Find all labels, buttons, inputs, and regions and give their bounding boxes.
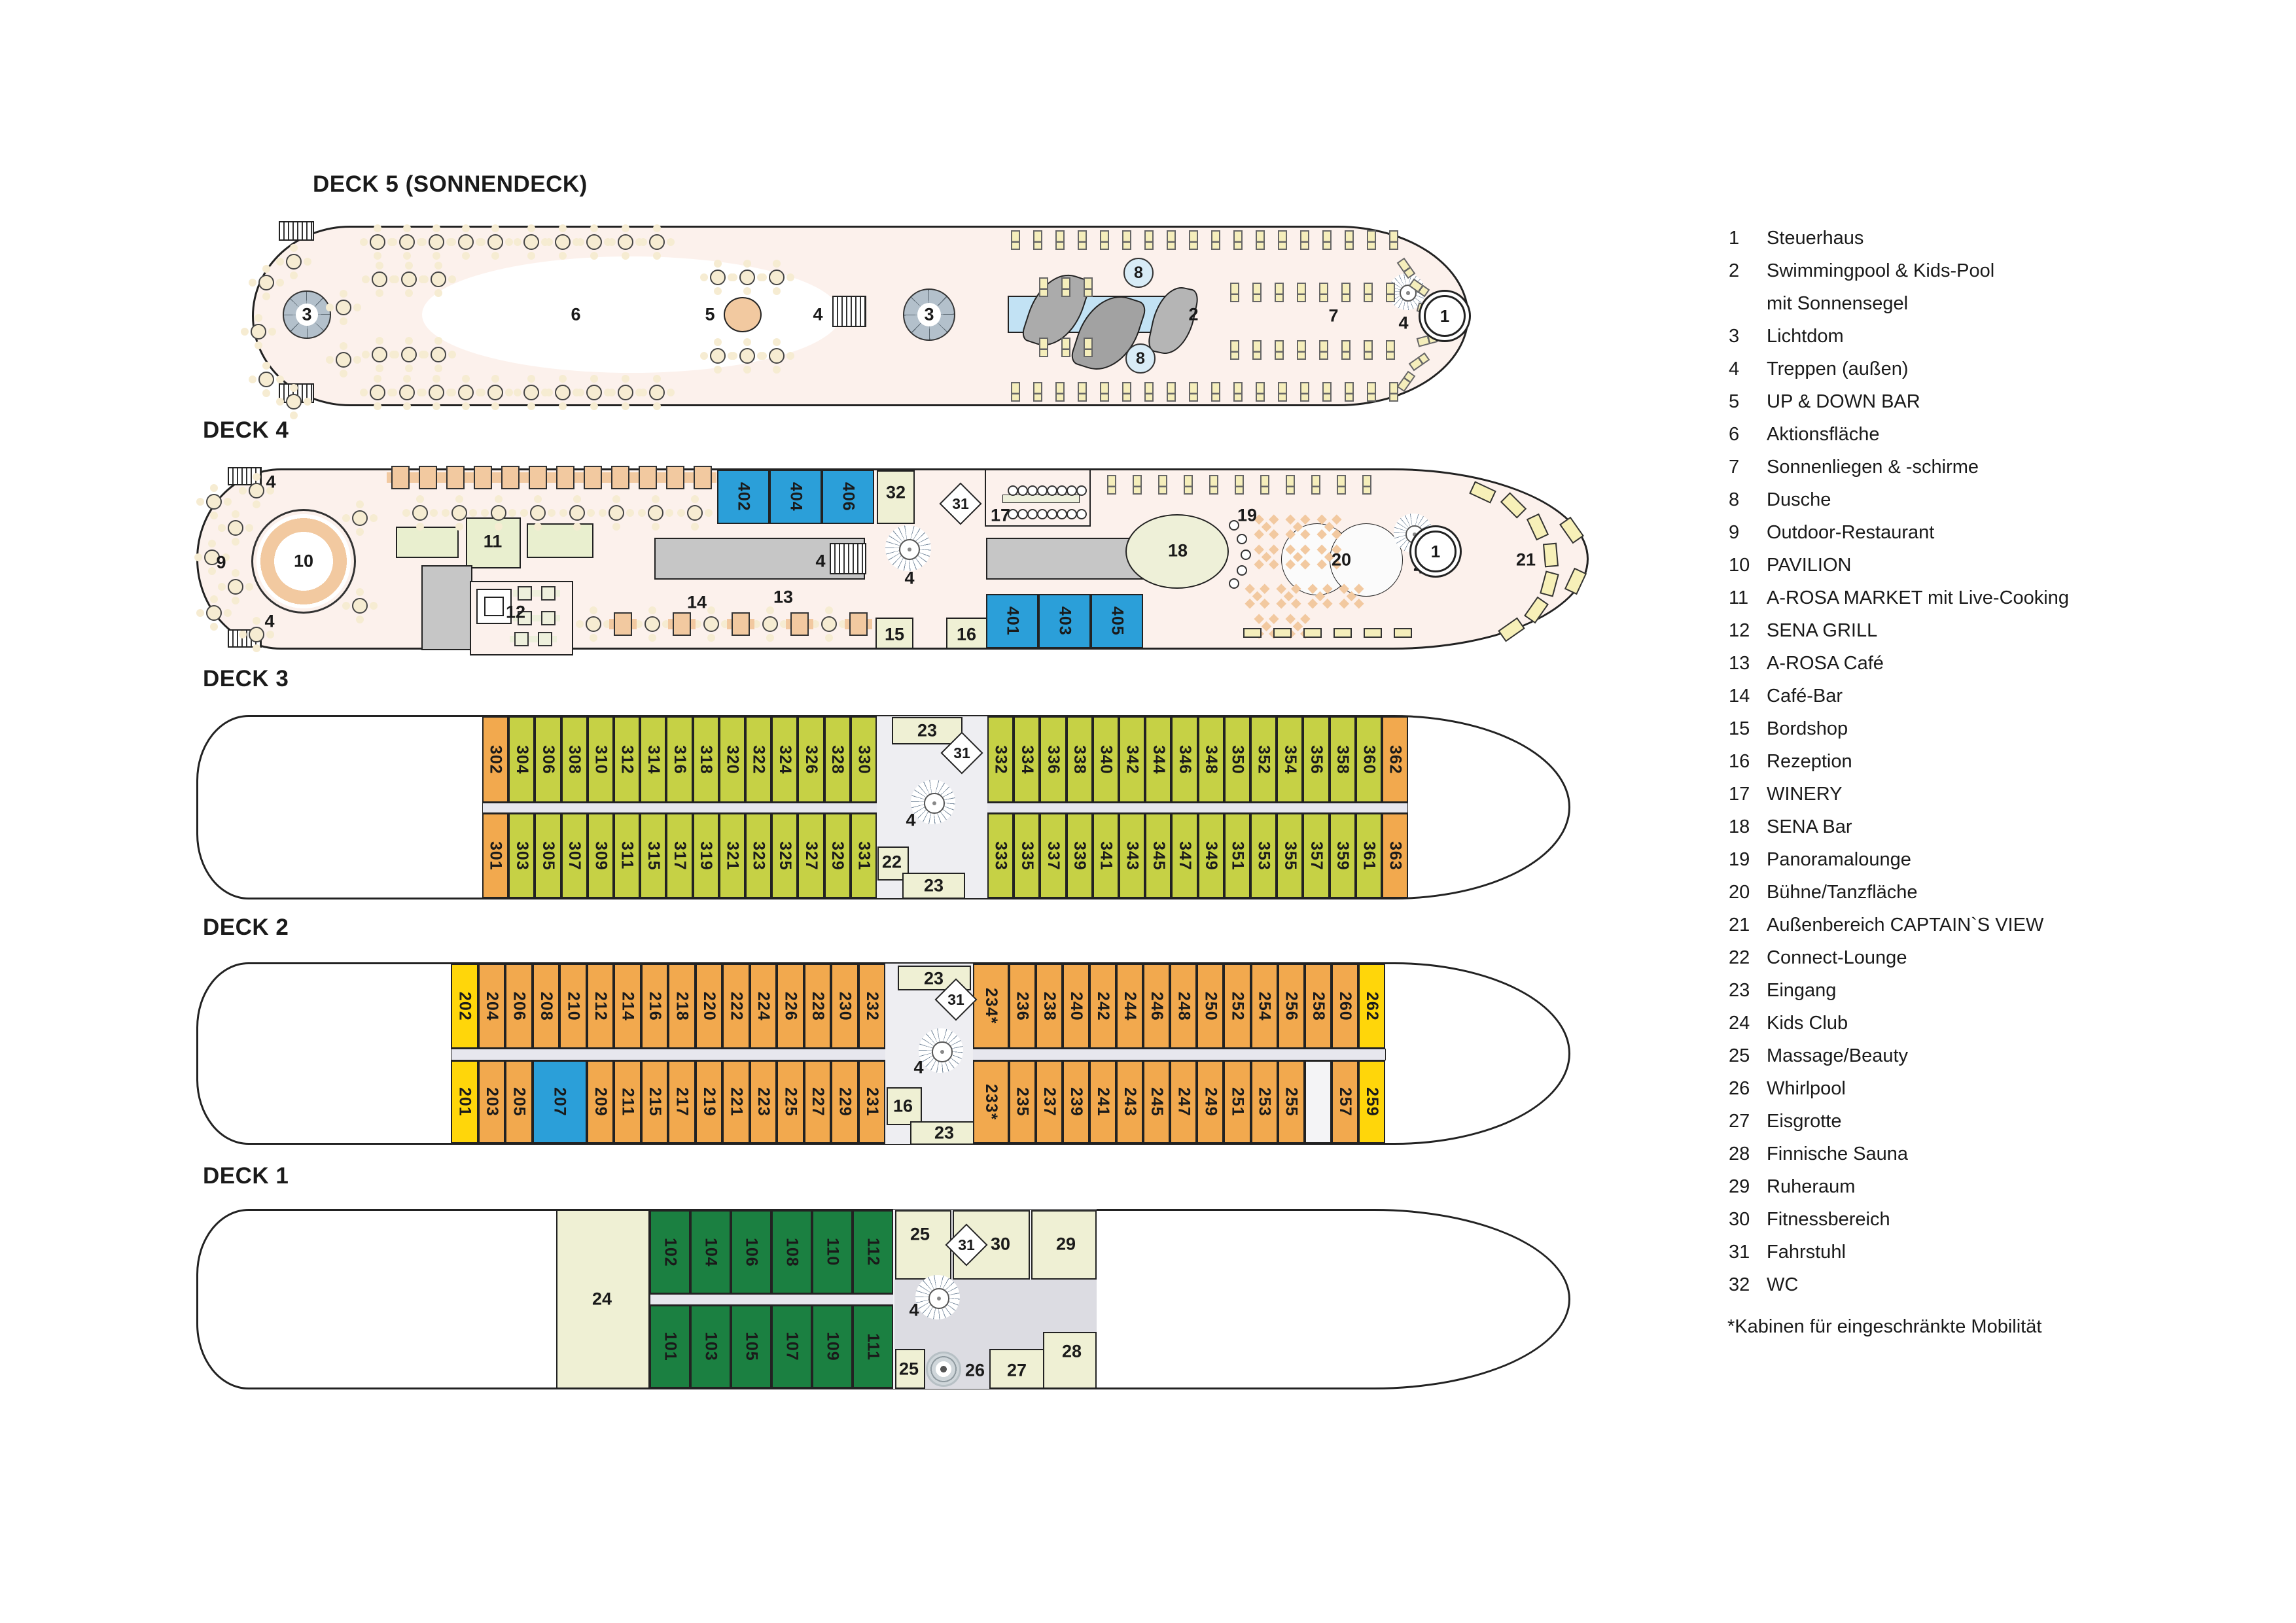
plan-label-28: 28 bbox=[1062, 1342, 1082, 1362]
sofa-icon bbox=[1303, 628, 1322, 638]
plan-label-16: 16 bbox=[893, 1096, 913, 1117]
cabin-number: 201 bbox=[455, 1087, 474, 1117]
cabin-349: 349 bbox=[1198, 813, 1224, 898]
sunlounger-icon bbox=[1122, 230, 1131, 250]
legend-number: 17 bbox=[1729, 784, 1750, 805]
cabin-226: 226 bbox=[777, 964, 804, 1049]
sunlounger-icon bbox=[1078, 230, 1087, 250]
winery-seat-icon bbox=[1047, 485, 1057, 496]
cabin-number: 231 bbox=[862, 1087, 881, 1117]
cabin-number: 239 bbox=[1067, 1087, 1086, 1117]
table-icon bbox=[732, 612, 750, 636]
table-icon bbox=[584, 466, 602, 489]
cabin-number: 333 bbox=[991, 841, 1010, 871]
cabin-350: 350 bbox=[1224, 716, 1250, 803]
cabin-333: 333 bbox=[987, 813, 1014, 898]
cabin-number: 402 bbox=[734, 482, 753, 512]
sunlounger-icon bbox=[1107, 475, 1116, 495]
cabin-361: 361 bbox=[1356, 813, 1382, 898]
cabin-number: 345 bbox=[1149, 841, 1168, 871]
cabin-number: 244 bbox=[1120, 992, 1139, 1021]
cabin-number: 342 bbox=[1123, 745, 1142, 775]
plan-label-12: 12 bbox=[506, 602, 525, 623]
legend-number: 11 bbox=[1729, 587, 1748, 609]
plan-label-5: 5 bbox=[705, 305, 715, 325]
whirlpool-icon bbox=[926, 1352, 961, 1387]
cabin-250: 250 bbox=[1197, 964, 1224, 1049]
plan-label-9: 9 bbox=[216, 553, 226, 573]
cabin-310: 310 bbox=[588, 716, 614, 803]
sunlounger-icon bbox=[1211, 230, 1220, 250]
plan-label-3: 3 bbox=[924, 305, 934, 325]
cabin-241: 241 bbox=[1089, 1060, 1116, 1143]
cabin-260: 260 bbox=[1332, 964, 1358, 1049]
cabin-number: 102 bbox=[661, 1238, 680, 1267]
winery-seat-icon bbox=[1017, 485, 1028, 496]
legend-label: Lichtdom bbox=[1767, 326, 1844, 347]
sunlounger-icon bbox=[1341, 340, 1351, 360]
table-icon bbox=[555, 234, 571, 250]
plan-label-3: 3 bbox=[302, 305, 311, 325]
table-icon bbox=[530, 505, 546, 521]
cabin-217: 217 bbox=[668, 1060, 696, 1143]
cabin-number: 108 bbox=[783, 1238, 802, 1267]
plan-label-11: 11 bbox=[484, 532, 503, 552]
cabin-308: 308 bbox=[561, 716, 588, 803]
table-icon bbox=[431, 347, 446, 362]
cabin-number: 317 bbox=[670, 841, 689, 871]
cabin-343: 343 bbox=[1119, 813, 1145, 898]
cabin-316: 316 bbox=[666, 716, 692, 803]
cabin-number: 331 bbox=[854, 841, 873, 871]
cabin-number: 336 bbox=[1044, 745, 1063, 775]
steuerhaus-icon: 1 bbox=[1409, 525, 1462, 578]
sunlounger-icon bbox=[1252, 283, 1262, 302]
legend-number: 14 bbox=[1729, 686, 1750, 707]
cabin-204: 204 bbox=[478, 964, 506, 1049]
cabin-341: 341 bbox=[1093, 813, 1119, 898]
cabin-248: 248 bbox=[1170, 964, 1197, 1049]
legend-label: mit Sonnensegel bbox=[1767, 293, 1908, 315]
legend-number: 29 bbox=[1729, 1176, 1750, 1198]
legend-label: Swimmingpool & Kids-Pool bbox=[1767, 260, 1994, 282]
sunlounger-icon bbox=[1055, 230, 1065, 250]
cabin-number: 308 bbox=[565, 745, 584, 775]
bar-stool-icon bbox=[1237, 534, 1247, 544]
cabin-229: 229 bbox=[831, 1060, 858, 1143]
cabin-236: 236 bbox=[1009, 964, 1036, 1049]
legend-label: Outdoor-Restaurant bbox=[1767, 522, 1934, 544]
cabin-number: 230 bbox=[835, 992, 854, 1021]
sunlounger-icon bbox=[1230, 340, 1239, 360]
cabin-353: 353 bbox=[1250, 813, 1277, 898]
table-icon bbox=[649, 234, 665, 250]
massage-25 bbox=[895, 1210, 951, 1280]
cabin-number: 343 bbox=[1123, 841, 1142, 871]
table-icon bbox=[739, 270, 755, 285]
cabin-number: 259 bbox=[1362, 1087, 1381, 1117]
legend-number: 4 bbox=[1729, 358, 1739, 380]
legend-label: Aktionsfläche bbox=[1767, 424, 1880, 445]
legend-number: 8 bbox=[1729, 489, 1739, 511]
table-icon bbox=[569, 505, 585, 521]
table-icon bbox=[352, 510, 368, 526]
cabin-326: 326 bbox=[798, 716, 824, 803]
cafe-counter bbox=[986, 538, 1150, 580]
cabin-206: 206 bbox=[505, 964, 533, 1049]
cabin-331: 331 bbox=[851, 813, 877, 898]
cabin-number: 309 bbox=[591, 841, 610, 871]
legend-number: 20 bbox=[1729, 882, 1750, 903]
cabin-number: 256 bbox=[1282, 992, 1301, 1021]
cabin-number: 320 bbox=[722, 745, 741, 775]
table-icon bbox=[412, 505, 428, 521]
table-icon bbox=[586, 234, 602, 250]
table-icon bbox=[391, 466, 410, 489]
table-icon bbox=[431, 271, 446, 287]
plan-label-20: 20 bbox=[1332, 550, 1351, 570]
cabin-number: 353 bbox=[1254, 841, 1273, 871]
sunlounger-icon bbox=[1039, 277, 1048, 297]
cabin-number: 210 bbox=[563, 992, 582, 1021]
legend-number: 15 bbox=[1729, 718, 1750, 740]
legend-number: 32 bbox=[1729, 1274, 1750, 1296]
legend-label: Sonnenliegen & -schirme bbox=[1767, 457, 1979, 478]
cabin-339: 339 bbox=[1067, 813, 1093, 898]
plan-label-4: 4 bbox=[815, 551, 825, 572]
plan-label-6: 6 bbox=[571, 305, 580, 325]
spiral-stairs-icon bbox=[915, 1275, 960, 1319]
cabin-number: 255 bbox=[1282, 1087, 1301, 1117]
cabin-number: 208 bbox=[537, 992, 556, 1021]
cabin-number: 334 bbox=[1017, 745, 1036, 775]
cabin-number: 351 bbox=[1227, 841, 1246, 871]
cabin-number: 233* bbox=[981, 1084, 1000, 1120]
table-icon bbox=[687, 505, 703, 521]
table-icon bbox=[618, 385, 633, 400]
cabin-number: 241 bbox=[1093, 1087, 1112, 1117]
cabin-number: 341 bbox=[1096, 841, 1115, 871]
cabin-number: 406 bbox=[839, 482, 858, 512]
sunlounger-icon bbox=[1297, 283, 1306, 302]
cabin-number: 245 bbox=[1147, 1087, 1166, 1117]
table-icon bbox=[228, 579, 243, 595]
table-icon bbox=[541, 586, 556, 601]
table-icon bbox=[849, 612, 868, 636]
cabin-312: 312 bbox=[614, 716, 640, 803]
cabin-255: 255 bbox=[1278, 1060, 1305, 1143]
cabin-321: 321 bbox=[719, 813, 745, 898]
cabin-number: 361 bbox=[1359, 841, 1378, 871]
cabin-gap bbox=[1305, 1060, 1332, 1143]
cabin-number: 349 bbox=[1201, 841, 1220, 871]
legend-number: 23 bbox=[1729, 980, 1750, 1002]
sunlounger-icon bbox=[1055, 382, 1065, 402]
legend-label: SENA GRILL bbox=[1767, 620, 1877, 642]
cabin-number: 228 bbox=[808, 992, 827, 1021]
legend-label: Connect-Lounge bbox=[1767, 947, 1907, 969]
legend-number: 7 bbox=[1729, 457, 1739, 478]
deck-2-title: DECK 2 bbox=[203, 915, 289, 941]
table-icon bbox=[419, 466, 437, 489]
cabin-number: 316 bbox=[670, 745, 689, 775]
cabin-251: 251 bbox=[1224, 1060, 1250, 1143]
legend-label: PAVILION bbox=[1767, 555, 1851, 576]
table-icon bbox=[611, 466, 629, 489]
legend-number: 19 bbox=[1729, 849, 1750, 871]
table-icon bbox=[666, 466, 684, 489]
cabin-219: 219 bbox=[696, 1060, 723, 1143]
sunlounger-icon bbox=[1011, 382, 1020, 402]
cabin-number: 401 bbox=[1003, 606, 1022, 636]
sunlounger-icon bbox=[1167, 230, 1176, 250]
cabin-number: 204 bbox=[482, 992, 501, 1021]
plan-label-30: 30 bbox=[991, 1234, 1010, 1255]
table-icon bbox=[249, 483, 264, 498]
table-icon bbox=[399, 234, 415, 250]
cabin-number: 249 bbox=[1201, 1087, 1220, 1117]
cabin-109: 109 bbox=[812, 1305, 853, 1388]
winery-seat-icon bbox=[1047, 509, 1057, 519]
legend-label: Eingang bbox=[1767, 980, 1836, 1002]
plan-label-27: 27 bbox=[1007, 1361, 1027, 1381]
cabin-number: 104 bbox=[701, 1238, 720, 1267]
cabin-252: 252 bbox=[1224, 964, 1250, 1049]
sunlounger-icon bbox=[1233, 382, 1243, 402]
cabin-330: 330 bbox=[851, 716, 877, 803]
table-icon bbox=[769, 348, 785, 364]
cabin-number: 337 bbox=[1044, 841, 1063, 871]
cabin-number: 227 bbox=[808, 1087, 827, 1117]
table-icon bbox=[586, 385, 602, 400]
cabin-363: 363 bbox=[1382, 813, 1408, 898]
cabin-105: 105 bbox=[731, 1305, 771, 1388]
plan-label-18: 18 bbox=[1168, 541, 1188, 561]
cabin-number: 319 bbox=[696, 841, 715, 871]
cabin-244: 244 bbox=[1116, 964, 1143, 1049]
cabin-237: 237 bbox=[1036, 1060, 1063, 1143]
table-icon bbox=[694, 466, 712, 489]
cabin-225: 225 bbox=[777, 1060, 804, 1143]
sunlounger-icon bbox=[1100, 382, 1109, 402]
cabin-number: 224 bbox=[754, 992, 773, 1021]
legend-label: A-ROSA MARKET mit Live-Cooking bbox=[1767, 587, 2069, 609]
table-icon bbox=[769, 270, 785, 285]
table-icon bbox=[451, 505, 467, 521]
sunlounger-icon bbox=[1341, 283, 1351, 302]
table-icon bbox=[710, 270, 726, 285]
table-icon bbox=[372, 347, 387, 362]
cabin-102: 102 bbox=[650, 1210, 690, 1294]
legend-label: Panoramalounge bbox=[1767, 849, 1911, 871]
cabin-201: 201 bbox=[451, 1060, 478, 1143]
table-icon bbox=[206, 605, 222, 621]
cabin-number: 357 bbox=[1307, 841, 1326, 871]
sunlounger-icon bbox=[1122, 382, 1131, 402]
plan-label-25: 25 bbox=[910, 1225, 930, 1245]
cabin-220: 220 bbox=[696, 964, 723, 1049]
cabin-number: 338 bbox=[1070, 745, 1089, 775]
cabin-322: 322 bbox=[745, 716, 771, 803]
legend-number: 2 bbox=[1729, 260, 1739, 282]
sunlounger-icon bbox=[1167, 382, 1176, 402]
plan-label-21: 21 bbox=[1516, 550, 1536, 570]
table-icon bbox=[710, 348, 726, 364]
cabin-number: 305 bbox=[539, 841, 557, 871]
sunlounger-icon bbox=[1337, 475, 1346, 495]
cabin-number: 358 bbox=[1333, 745, 1352, 775]
cabin-246: 246 bbox=[1143, 964, 1170, 1049]
cabin-240: 240 bbox=[1063, 964, 1089, 1049]
table-icon bbox=[228, 520, 243, 536]
cabin-104: 104 bbox=[690, 1210, 731, 1294]
cabin-406: 406 bbox=[822, 470, 874, 524]
sunlounger-icon bbox=[1252, 340, 1262, 360]
cabin-323: 323 bbox=[745, 813, 771, 898]
sunlounger-icon bbox=[1033, 230, 1042, 250]
ship-deck-plan: DECK 5 (SONNENDECK) DECK 4 DECK 3 DECK 2… bbox=[0, 0, 2296, 1623]
cabin-number: 323 bbox=[749, 841, 768, 871]
cabin-221: 221 bbox=[722, 1060, 750, 1143]
cabin-342: 342 bbox=[1119, 716, 1145, 803]
cabin-327: 327 bbox=[798, 813, 824, 898]
cabin-232: 232 bbox=[858, 964, 886, 1049]
legend-label: Dusche bbox=[1767, 489, 1831, 511]
table-icon bbox=[258, 275, 274, 290]
cabin-number: 101 bbox=[661, 1332, 680, 1361]
winery-bar bbox=[1002, 495, 1080, 503]
cabin-number: 232 bbox=[862, 992, 881, 1021]
bar-stool-icon bbox=[1241, 550, 1251, 560]
cabin-317: 317 bbox=[666, 813, 692, 898]
table-icon bbox=[514, 632, 529, 646]
winery-seat-icon bbox=[1027, 485, 1038, 496]
table-icon bbox=[649, 385, 665, 400]
cabin-360: 360 bbox=[1356, 716, 1382, 803]
cabin-253: 253 bbox=[1251, 1060, 1278, 1143]
cabin-number: 240 bbox=[1067, 992, 1086, 1021]
plan-label-17: 17 bbox=[991, 506, 1010, 526]
legend-number: 6 bbox=[1729, 424, 1739, 445]
plan-label-23: 23 bbox=[917, 721, 937, 741]
table-icon bbox=[648, 505, 663, 521]
cabin-249: 249 bbox=[1197, 1060, 1224, 1143]
cabin-110: 110 bbox=[812, 1210, 853, 1294]
cabin-number: 238 bbox=[1040, 992, 1059, 1021]
cabin-210: 210 bbox=[559, 964, 587, 1049]
cabin-number: 405 bbox=[1108, 606, 1127, 636]
table-icon bbox=[541, 611, 556, 625]
stairs-icon bbox=[832, 296, 866, 327]
legend-number: 18 bbox=[1729, 816, 1750, 838]
plan-label-4: 4 bbox=[913, 1058, 923, 1078]
winery-seat-icon bbox=[1037, 485, 1048, 496]
cabin-348: 348 bbox=[1198, 716, 1224, 803]
bar-stool-icon bbox=[1229, 578, 1239, 589]
table-icon bbox=[206, 494, 222, 510]
sunlounger-icon bbox=[1389, 230, 1398, 250]
cabin-337: 337 bbox=[1040, 813, 1066, 898]
table-icon bbox=[352, 598, 368, 614]
cabin-325: 325 bbox=[771, 813, 798, 898]
cabin-number: 250 bbox=[1201, 992, 1220, 1021]
legend-label: SENA Bar bbox=[1767, 816, 1852, 838]
dusche-icon: 8 bbox=[1125, 343, 1156, 374]
plan-label-24: 24 bbox=[592, 1289, 612, 1310]
sunlounger-icon bbox=[1297, 340, 1306, 360]
cabin-309: 309 bbox=[588, 813, 614, 898]
legend-number: 21 bbox=[1729, 915, 1750, 936]
cabin-304: 304 bbox=[508, 716, 535, 803]
cabin-401: 401 bbox=[986, 594, 1038, 648]
cabin-259: 259 bbox=[1358, 1060, 1385, 1143]
cabin-number: 243 bbox=[1120, 1087, 1139, 1117]
sunlounger-icon bbox=[1322, 230, 1332, 250]
cabin-number: 221 bbox=[726, 1087, 745, 1117]
sunlounger-icon bbox=[1144, 382, 1154, 402]
cabin-number: 225 bbox=[781, 1087, 800, 1117]
sunlounger-icon bbox=[1278, 230, 1287, 250]
cabin-number: 106 bbox=[742, 1238, 761, 1267]
winery-seat-icon bbox=[1017, 509, 1028, 519]
cabin-302: 302 bbox=[482, 716, 508, 803]
legend-number: 27 bbox=[1729, 1111, 1750, 1132]
table-icon bbox=[821, 616, 837, 632]
cabin-211: 211 bbox=[614, 1060, 641, 1143]
legend-number: 31 bbox=[1729, 1242, 1750, 1263]
cabin-205: 205 bbox=[505, 1060, 533, 1143]
cabin-number: 105 bbox=[742, 1332, 761, 1361]
cabin-404: 404 bbox=[769, 470, 822, 524]
cabin-number: 404 bbox=[786, 482, 805, 512]
cabin-256: 256 bbox=[1278, 964, 1305, 1049]
cabin-235: 235 bbox=[1009, 1060, 1036, 1143]
winery-seat-icon bbox=[1067, 509, 1077, 519]
legend-number: 5 bbox=[1729, 391, 1739, 413]
cabin-number: 216 bbox=[645, 992, 664, 1021]
cabin-234*: 234* bbox=[973, 964, 1009, 1049]
sunlounger-icon bbox=[1084, 277, 1093, 297]
cabin-345: 345 bbox=[1145, 813, 1171, 898]
sunlounger-icon bbox=[1278, 382, 1287, 402]
sunlounger-icon bbox=[1319, 283, 1328, 302]
table-icon bbox=[586, 616, 601, 632]
legend-label: A-ROSA Café bbox=[1767, 653, 1884, 674]
table-icon bbox=[286, 394, 302, 410]
table-icon bbox=[474, 466, 492, 489]
table-icon bbox=[258, 372, 274, 387]
cabin-number: 363 bbox=[1386, 841, 1405, 871]
cabin-number: 311 bbox=[618, 841, 637, 869]
winery-seat-icon bbox=[1057, 485, 1067, 496]
table-icon bbox=[555, 385, 571, 400]
cabin-number: 327 bbox=[802, 841, 821, 871]
cabin-354: 354 bbox=[1277, 716, 1303, 803]
cabin-344: 344 bbox=[1145, 716, 1171, 803]
cabin-number: 332 bbox=[991, 745, 1010, 775]
cabin-258: 258 bbox=[1305, 964, 1332, 1049]
plan-label-2: 2 bbox=[1188, 305, 1198, 325]
cabin-number: 355 bbox=[1280, 841, 1299, 871]
cabin-230: 230 bbox=[831, 964, 858, 1049]
cabin-254: 254 bbox=[1251, 964, 1278, 1049]
cabin-number: 335 bbox=[1017, 841, 1036, 871]
winery-seat-icon bbox=[1057, 509, 1067, 519]
cabin-number: 223 bbox=[754, 1087, 773, 1117]
sunlounger-icon bbox=[1300, 382, 1309, 402]
sunlounger-icon bbox=[1260, 475, 1269, 495]
table-icon bbox=[401, 271, 417, 287]
